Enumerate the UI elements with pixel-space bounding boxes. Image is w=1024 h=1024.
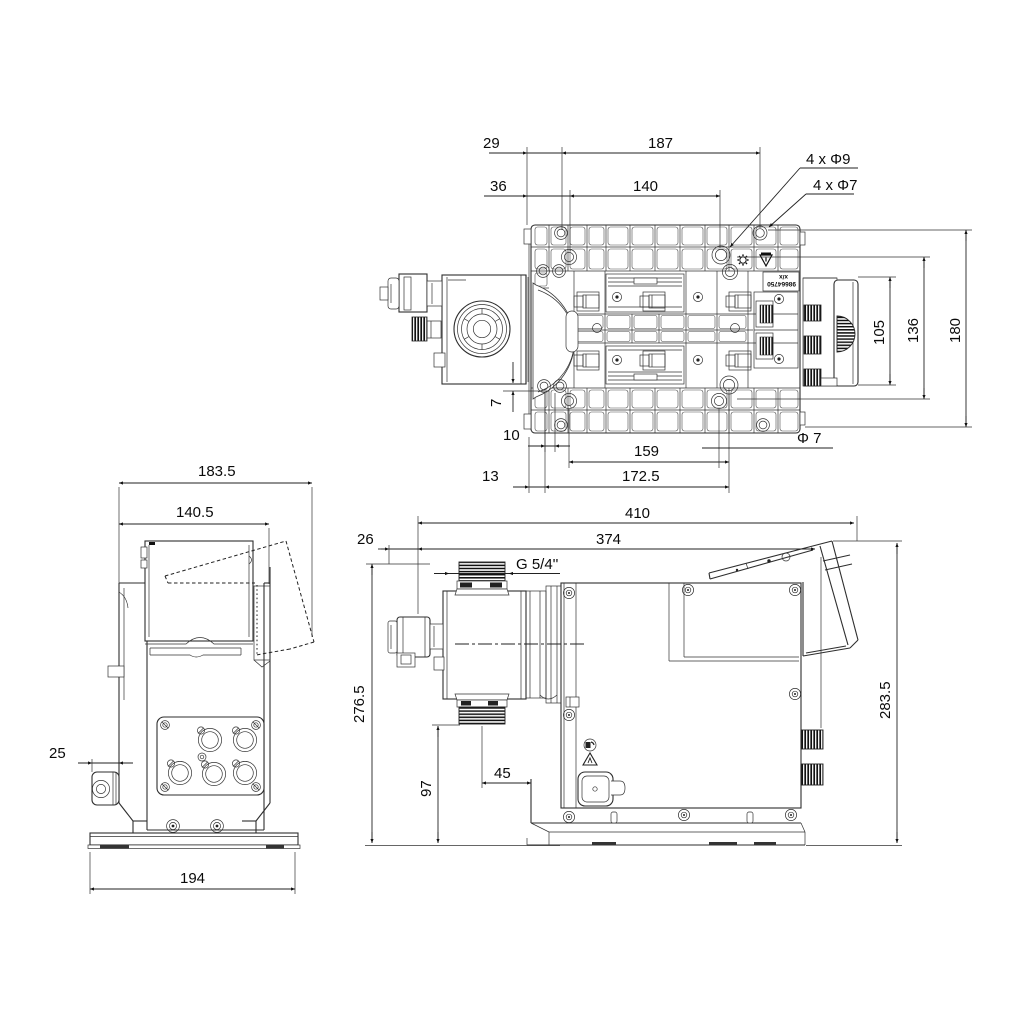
svg-text:G 5/4'': G 5/4'' <box>516 556 559 573</box>
svg-text:4 x Φ7: 4 x Φ7 <box>813 177 858 194</box>
svg-text:7: 7 <box>488 399 505 407</box>
svg-text:194: 194 <box>180 870 205 887</box>
svg-text:10: 10 <box>503 427 520 444</box>
svg-text:36: 36 <box>490 178 507 195</box>
svg-text:25: 25 <box>49 745 66 762</box>
svg-text:374: 374 <box>596 531 621 548</box>
svg-text:140.5: 140.5 <box>176 504 214 521</box>
svg-text:283.5: 283.5 <box>877 681 894 719</box>
svg-text:98664750: 98664750 <box>767 280 796 287</box>
svg-text:180: 180 <box>947 318 964 343</box>
svg-text:26: 26 <box>357 531 374 548</box>
svg-text:136: 136 <box>905 318 922 343</box>
svg-text:187: 187 <box>648 135 673 152</box>
svg-text:45: 45 <box>494 765 511 782</box>
svg-text:276.5: 276.5 <box>351 685 368 723</box>
svg-text:29: 29 <box>483 135 500 152</box>
svg-text:x/x: x/x <box>779 273 788 280</box>
svg-text:97: 97 <box>418 780 435 797</box>
svg-text:4 x Φ9: 4 x Φ9 <box>806 151 851 168</box>
svg-text:Φ 7: Φ 7 <box>797 430 821 447</box>
svg-text:159: 159 <box>634 443 659 460</box>
svg-text:172.5: 172.5 <box>622 468 660 485</box>
svg-text:140: 140 <box>633 178 658 195</box>
svg-text:410: 410 <box>625 505 650 522</box>
svg-text:183.5: 183.5 <box>198 463 236 480</box>
svg-text:105: 105 <box>871 320 888 345</box>
svg-text:13: 13 <box>482 468 499 485</box>
